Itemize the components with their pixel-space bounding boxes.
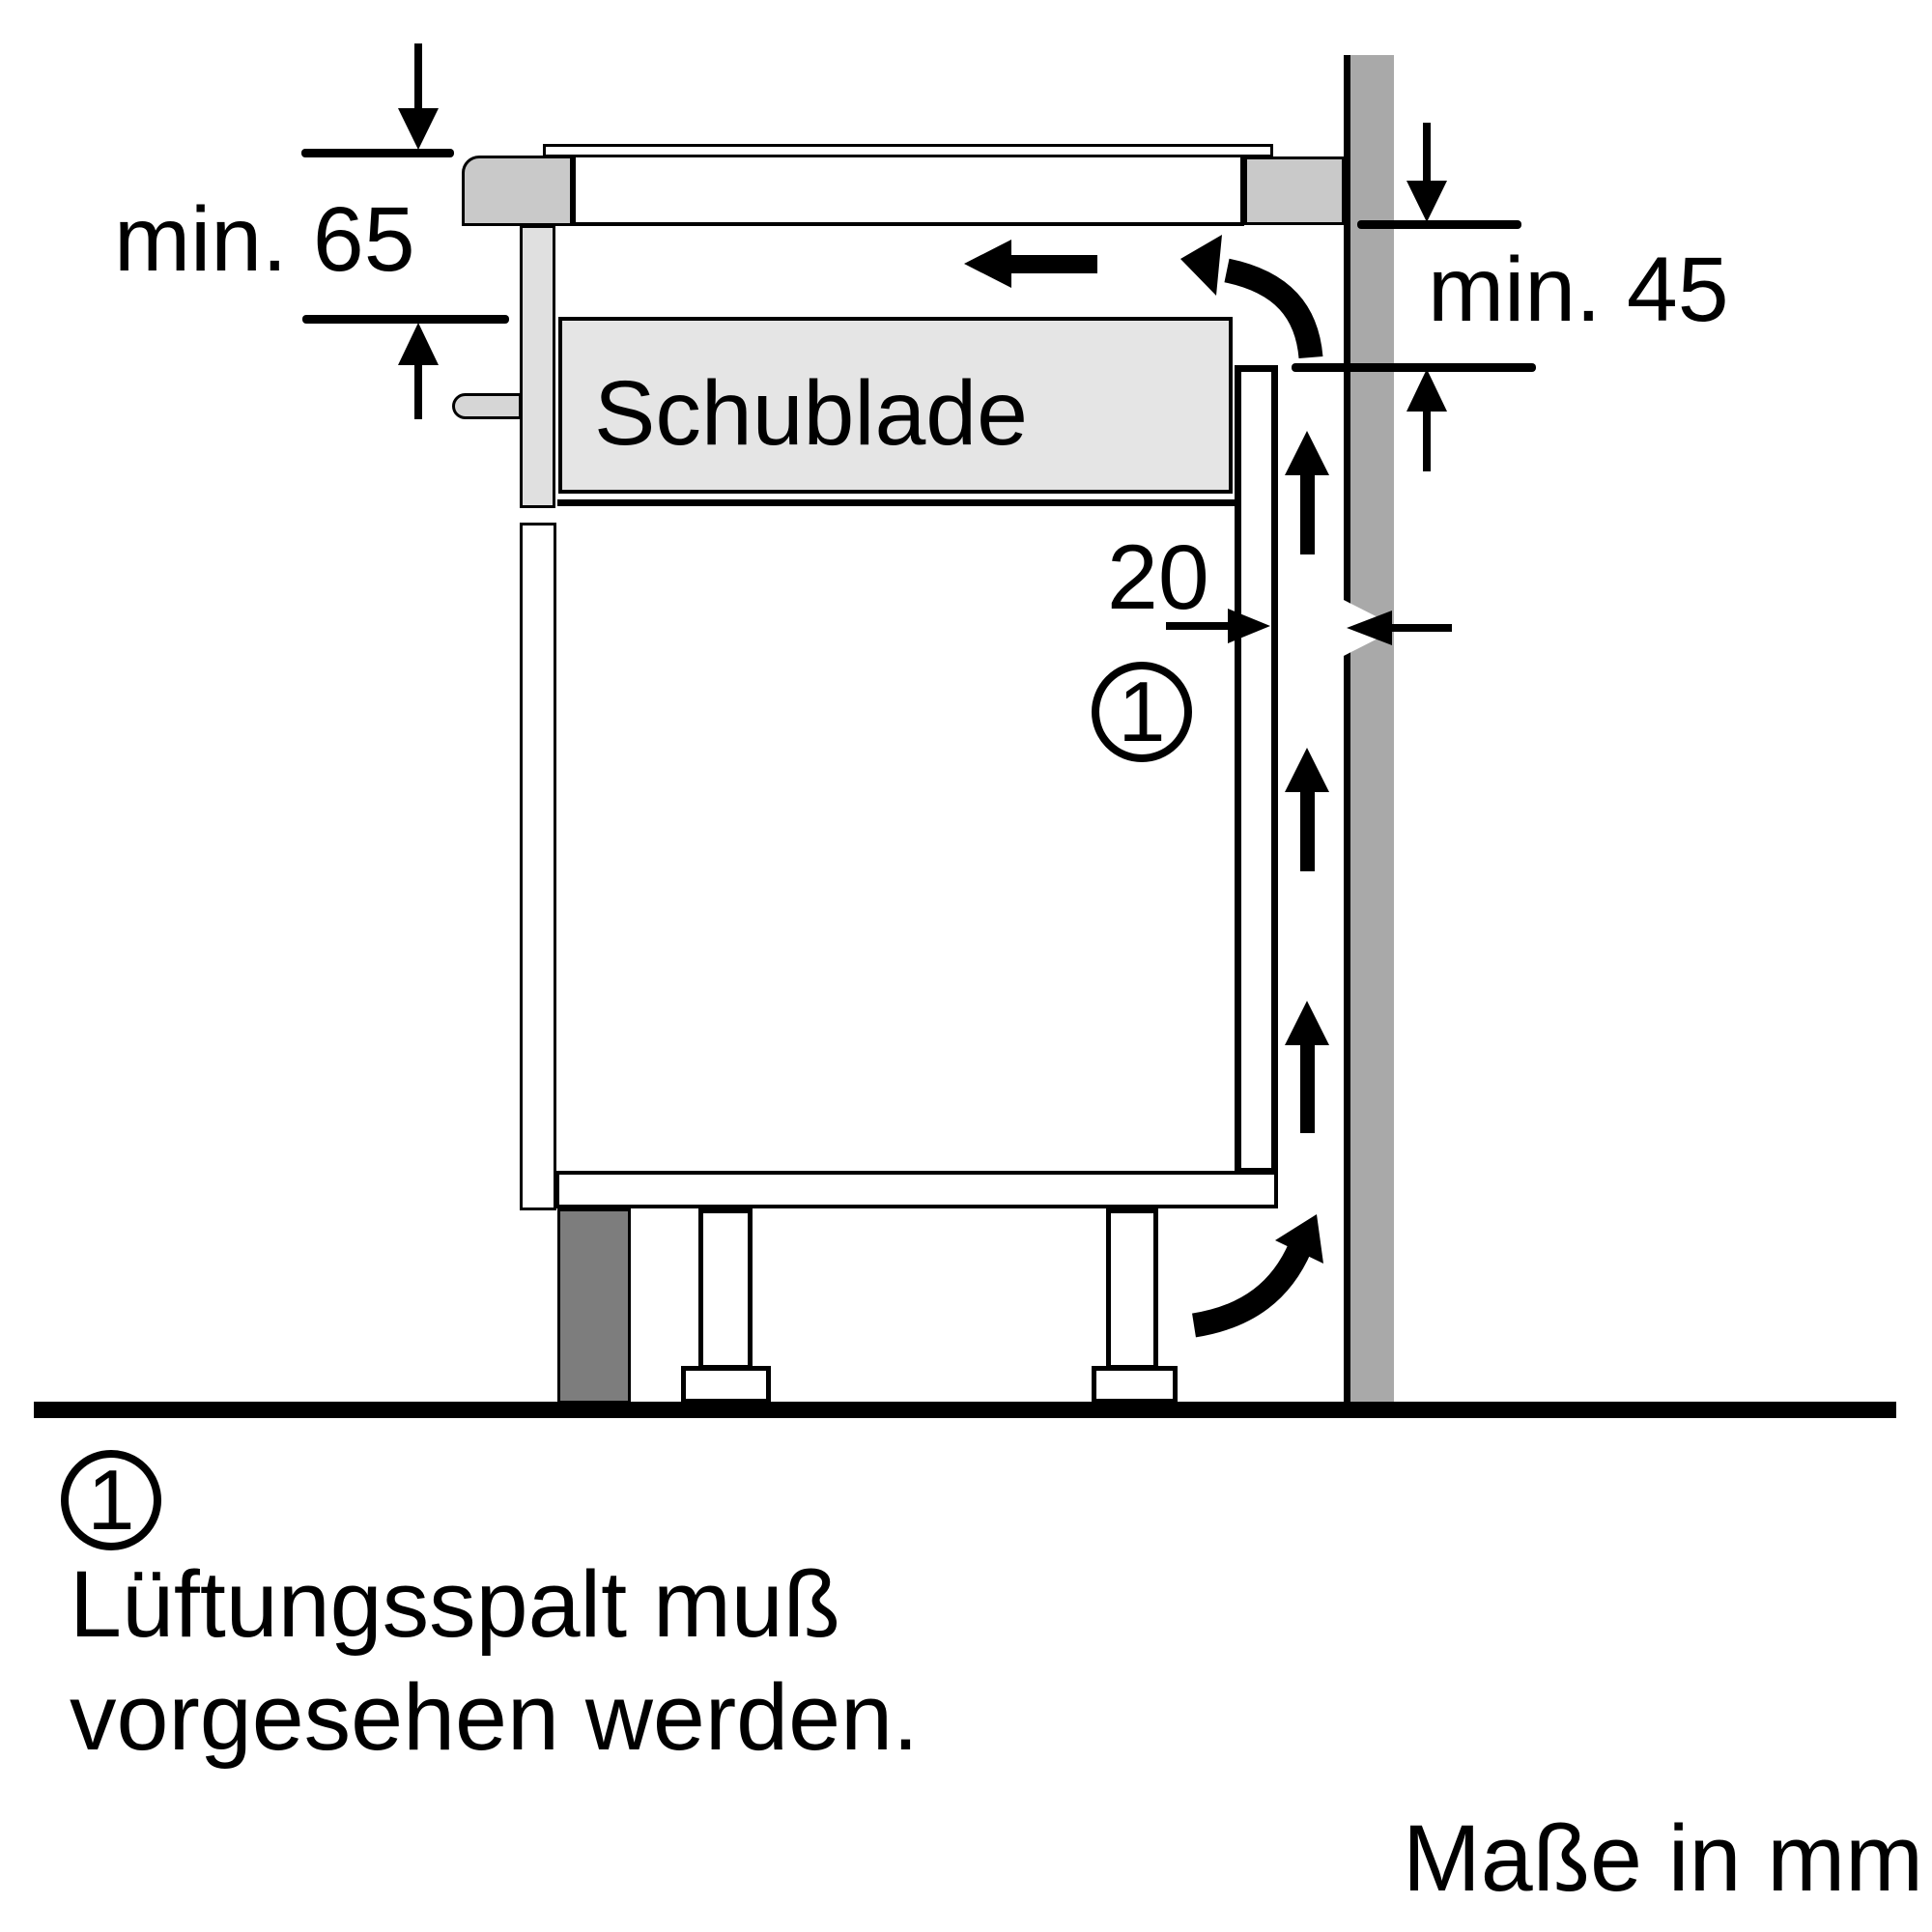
dim-min45-up-arrow-shaft — [1423, 410, 1431, 471]
dim-min45-down-arrow-shaft — [1423, 123, 1431, 183]
intermediate-shelf — [557, 499, 1239, 506]
hob-glass-panel — [543, 144, 1273, 157]
dim-min65-down-arrow-shaft — [414, 43, 422, 113]
dim-gap-left-arrow-shaft — [1392, 624, 1452, 632]
foot-front-stem — [698, 1208, 753, 1370]
dim-min65-up-arrow-shaft — [414, 363, 422, 419]
dim-min45-down-arrow-head — [1406, 181, 1447, 222]
cabinet-bottom-panel — [555, 1171, 1278, 1208]
worktop-front-trim — [462, 156, 573, 226]
dim-min65-label: min. 65 — [114, 194, 415, 286]
foot-rear-stem — [1106, 1208, 1158, 1370]
dim-min65-top-tick — [301, 149, 454, 157]
installation-diagram: Schublade — [0, 0, 1932, 1932]
dim-min65-bottom-tick — [302, 315, 509, 324]
legend-1-number: 1 — [88, 1458, 135, 1543]
plinth — [557, 1208, 631, 1404]
hob-front-box — [520, 225, 555, 508]
airflow-left-arrow-shaft — [1011, 255, 1097, 273]
legend-1-marker: 1 — [61, 1450, 161, 1550]
callout-1-number: 1 — [1119, 669, 1166, 754]
dim-min45-bottom-tick — [1292, 363, 1536, 372]
fixing-pin — [452, 393, 522, 419]
callout-1-marker: 1 — [1092, 662, 1192, 762]
airflow-up-arrow-3-shaft — [1300, 1043, 1315, 1133]
units-note: Maße in mm — [1403, 1811, 1923, 1905]
dim-min65-down-arrow-head — [398, 108, 439, 150]
cabinet-front-panel — [520, 523, 556, 1210]
airflow-top-curve — [1227, 270, 1311, 357]
cabinet-back-panel — [1235, 365, 1278, 1175]
airflow-top-curve-head — [1180, 235, 1222, 296]
dim-min45-label: min. 45 — [1428, 244, 1729, 336]
airflow-up-arrow-2-shaft — [1300, 790, 1315, 871]
airflow-up-arrow-1-shaft — [1300, 473, 1315, 554]
foot-front-base — [681, 1366, 771, 1404]
airflow-left-arrow-head — [964, 240, 1011, 288]
worktop-rear-spacer — [1244, 156, 1345, 225]
foot-rear-base — [1092, 1366, 1178, 1404]
airflow-up-arrow-2-head — [1285, 748, 1329, 792]
airflow-bottom-curve — [1194, 1247, 1300, 1325]
airflow-up-arrow-3-head — [1285, 1001, 1329, 1045]
airflow-bottom-curve-head — [1275, 1214, 1323, 1264]
dim-min45-top-tick — [1357, 220, 1521, 229]
dim-min65-up-arrow-head — [398, 323, 439, 365]
dim-min45-up-arrow-head — [1406, 369, 1447, 412]
dim-gap-label: 20 — [1107, 532, 1209, 624]
legend-text-line2: vorgesehen werden. — [70, 1670, 919, 1764]
legend-text-line1: Lüftungsspalt muß — [70, 1557, 840, 1651]
worktop — [572, 151, 1244, 226]
drawer-label: Schublade — [594, 368, 1028, 460]
wall-surface-line — [1344, 55, 1350, 1402]
floor-line — [34, 1402, 1896, 1418]
wall — [1350, 55, 1394, 1402]
airflow-up-arrow-1-head — [1285, 431, 1329, 475]
